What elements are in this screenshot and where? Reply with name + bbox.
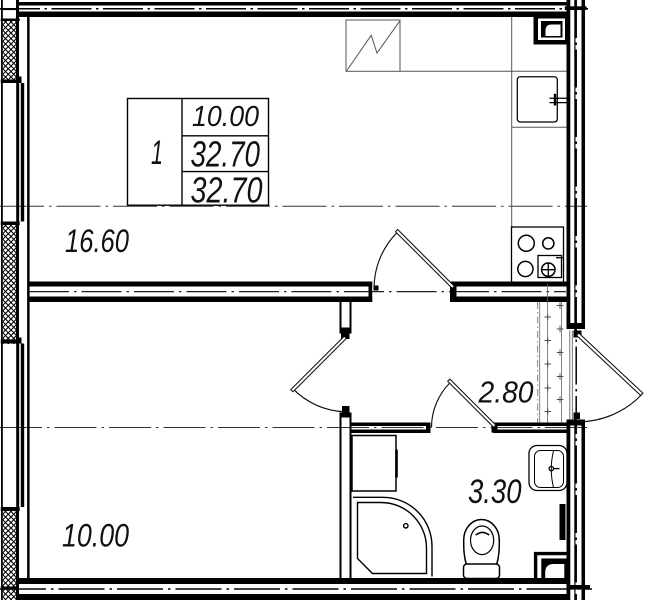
svg-text:2.80: 2.80 [478,375,534,410]
svg-text:10.00: 10.00 [62,518,129,554]
svg-text:32.70: 32.70 [191,169,263,210]
svg-text:10.00: 10.00 [192,101,259,133]
svg-text:16.60: 16.60 [65,223,129,259]
svg-text:3.30: 3.30 [468,473,522,511]
svg-text:1: 1 [151,134,163,172]
svg-text:32.70: 32.70 [191,133,261,174]
